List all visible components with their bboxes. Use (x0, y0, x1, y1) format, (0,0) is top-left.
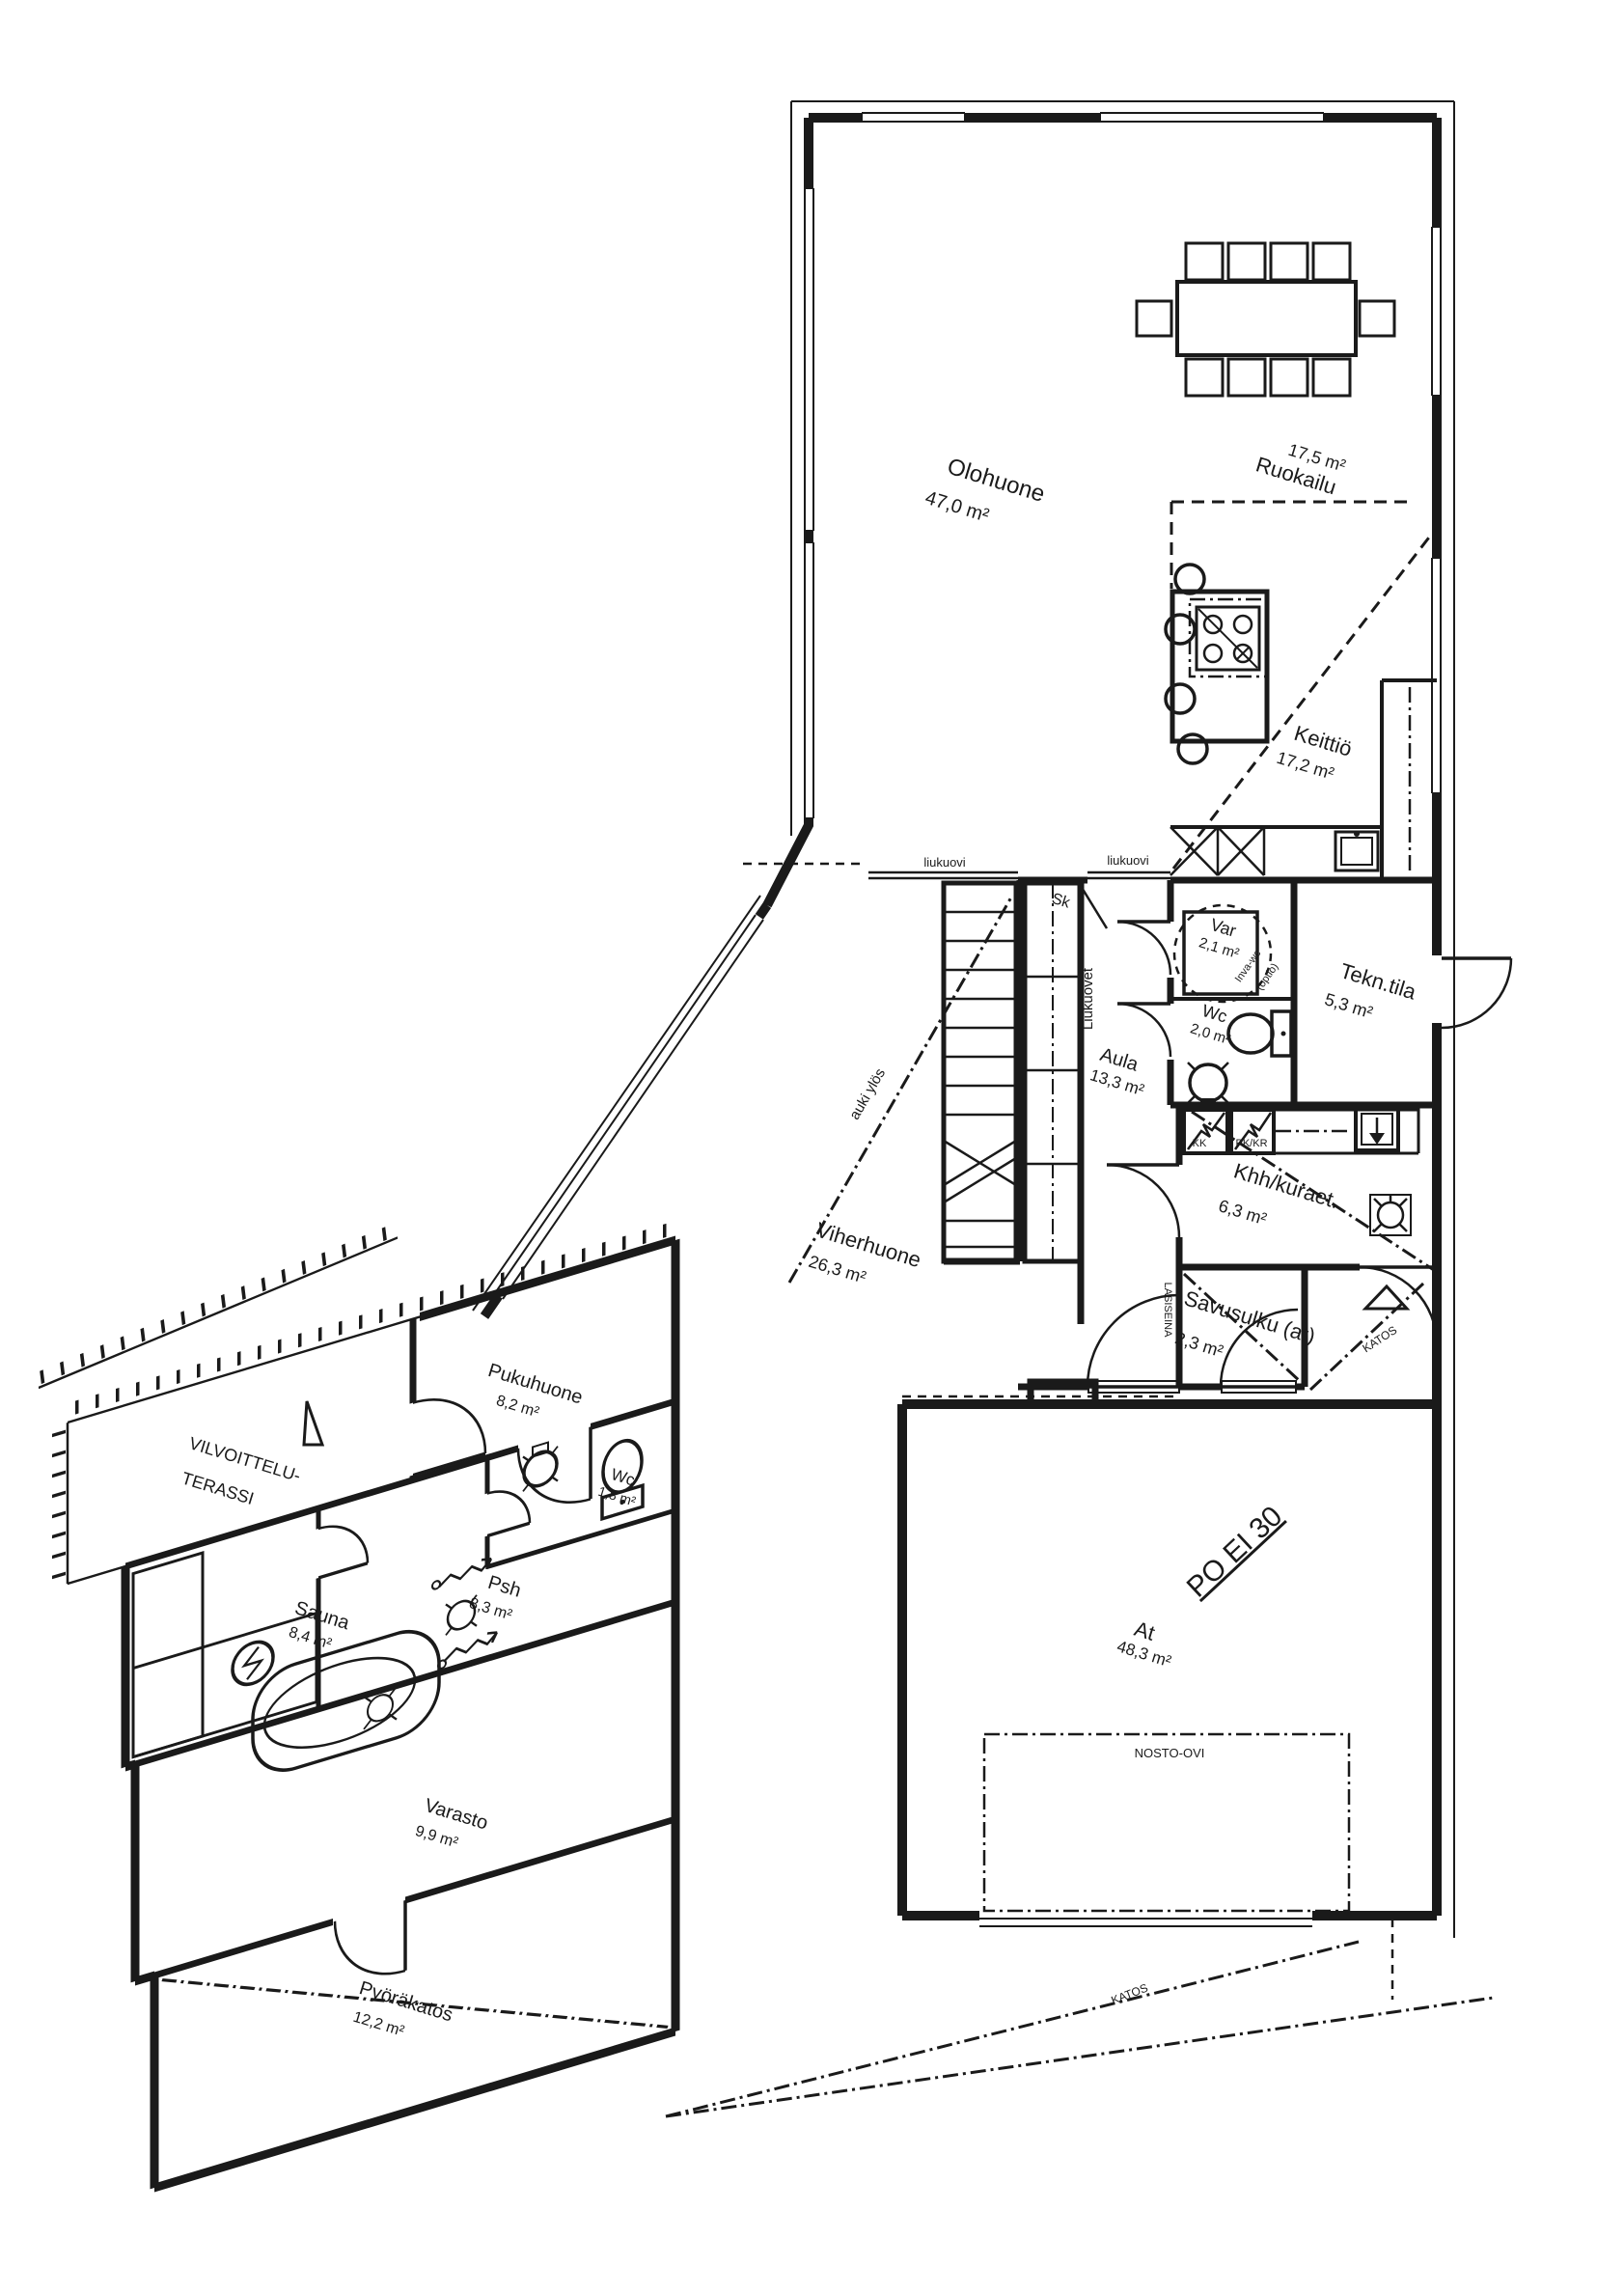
annotation-auki-ylos: auki ylös (846, 1065, 889, 1122)
room-label-autotalli: At48,3 m² (1115, 1616, 1173, 1671)
chute-icon (1356, 1108, 1398, 1150)
svg-text:9,9 m²: 9,9 m² (413, 1823, 460, 1852)
floorplan-page: Olohuone47,0 m²Ruokailu17,5 m²Keittiö17,… (0, 0, 1624, 2293)
room-label-keittio: Keittiö17,2 m² (1275, 721, 1355, 784)
annotation-liukuovi-1: liukuovi (923, 855, 965, 870)
wing-interior-walls (125, 1240, 675, 1984)
svg-text:8,4 m²: 8,4 m² (287, 1624, 334, 1653)
annotation-liukuovet: Liukuovet (1080, 967, 1096, 1030)
wing-doors (318, 1349, 591, 1997)
room-label-wc-aula: Wc2,0 m² (1189, 1001, 1233, 1048)
svg-text:5,3 m²: 5,3 m² (1322, 989, 1375, 1022)
sauna-wing (39, 1146, 675, 2223)
room-label-aula: Aula13,3 m² (1087, 1044, 1146, 1099)
room-label-var: Var2,1 m² (1197, 915, 1242, 962)
sliding-doors (743, 502, 1435, 2000)
dining-set (1137, 243, 1394, 396)
svg-text:8,3 m²: 8,3 m² (467, 1595, 514, 1624)
stove-icon (1198, 609, 1257, 668)
room-label-vilvoitteluterassi: VILVOITTELU-TERASSI (179, 1433, 303, 1508)
annotation-nosto-ovi: NOSTO-OVI (1135, 1746, 1205, 1760)
kitchen-counter (1170, 680, 1437, 878)
wing-room-walls (318, 1401, 675, 1709)
svg-text:47,0 m²: 47,0 m² (922, 487, 992, 527)
wing-exterior-walls (125, 1240, 675, 2196)
svg-text:2,0 m²: 2,0 m² (1189, 1020, 1233, 1048)
svg-text:Wc: Wc (1199, 1001, 1229, 1027)
washbasin-icon-wc (1188, 1063, 1228, 1108)
room-label-viherhuone: Viherhuone26,3 m² (807, 1217, 924, 1286)
room-label-tekn-tila: Tekn.tila5,3 m² (1322, 958, 1419, 1022)
annotation-sk: Sk (1050, 891, 1073, 912)
annotation-kk: KK (1193, 1138, 1207, 1149)
annotation-katos-1: KATOS (1360, 1323, 1399, 1355)
room-label-pukuhuone: Pukuhuone8,2 m² (485, 1360, 585, 1422)
room-label-ruokailu: Ruokailu17,5 m² (1253, 440, 1348, 500)
annotation-po-ei-30: PO EI 30 (1181, 1500, 1289, 1603)
annotation-katos-2: KATOS (1110, 1981, 1150, 2007)
svg-text:2,1 m²: 2,1 m² (1197, 934, 1242, 962)
svg-text:TERASSI: TERASSI (179, 1468, 257, 1508)
washbasin-icon-sauna-wc (523, 1440, 558, 1492)
floorplan-canvas: Olohuone47,0 m²Ruokailu17,5 m²Keittiö17,… (0, 0, 1624, 2293)
svg-text:26,3 m²: 26,3 m² (807, 1252, 868, 1287)
annotation-labels: liukuoviliukuoviSkLiukuovetauki ylösInva… (846, 853, 1399, 2007)
terrace-step-icon (304, 1401, 322, 1445)
garage-door (979, 1734, 1349, 1926)
room-label-olohuone: Olohuone47,0 m² (922, 454, 1048, 527)
room-label-varasto: Varasto9,9 m² (413, 1795, 490, 1852)
svg-text:Psh: Psh (485, 1572, 523, 1602)
sink-icon (1335, 831, 1378, 870)
kitchen-island (1166, 565, 1267, 763)
terrace-deck (39, 1147, 670, 1592)
annotation-liukuovi-2: liukuovi (1107, 853, 1148, 868)
svg-text:12,2 m²: 12,2 m² (351, 2009, 406, 2040)
svg-text:6,3 m²: 6,3 m² (1216, 1196, 1269, 1229)
toilet-icon-wc (1228, 1011, 1291, 1056)
annotation-pk-kr: PK/KR (1235, 1138, 1267, 1149)
floor-drain-icon (1370, 1195, 1411, 1235)
room-label-pyorakatos: Pyöräkatos12,2 m² (351, 1977, 455, 2040)
room-label-psh: Psh8,3 m² (467, 1572, 523, 1624)
svg-text:Var: Var (1208, 915, 1238, 941)
room-label-sauna: Sauna8,4 m² (287, 1597, 352, 1652)
room-label-savusulku: Savusulku (at)2,3 m² (1172, 1285, 1318, 1361)
svg-text:13,3 m²: 13,3 m² (1087, 1065, 1146, 1099)
stairs (944, 883, 1016, 1261)
annotation-lasiseina: LASISEINA (1162, 1283, 1173, 1339)
svg-text:8,2 m²: 8,2 m² (494, 1393, 541, 1422)
